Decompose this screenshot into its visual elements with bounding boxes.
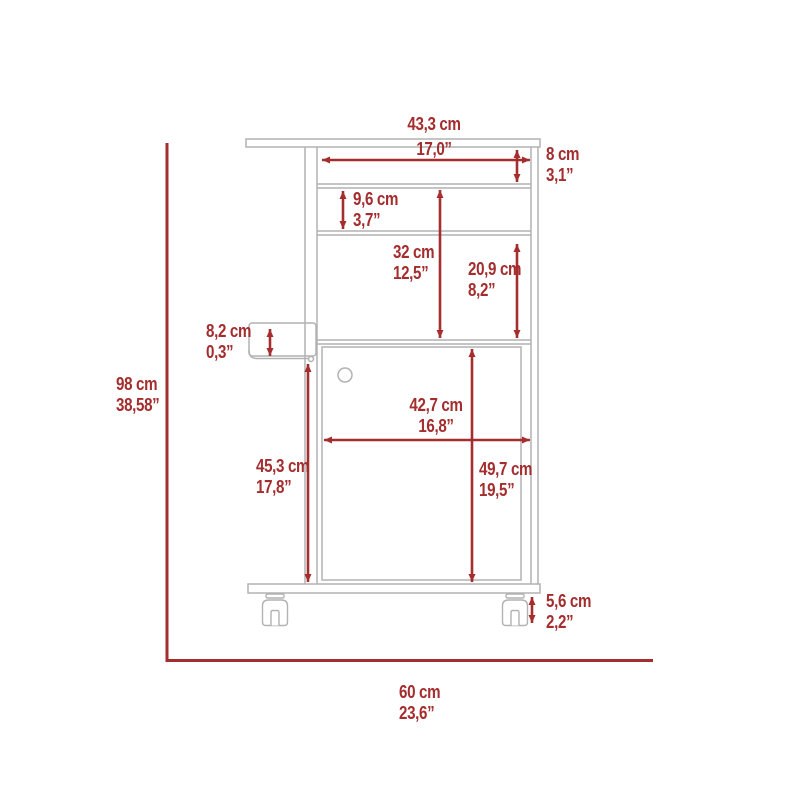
dim-towel-bar-cm: 8,2 cm	[206, 321, 251, 342]
dim-label-towel-bar: 8,2 cm 0,3”	[206, 321, 251, 363]
dim-label-overall-height: 98 cm 38,58”	[116, 374, 159, 416]
dim-top-opening-in: 3,1”	[546, 165, 579, 186]
shelf-2	[317, 231, 531, 235]
dim-caster-in: 2,2”	[546, 612, 591, 633]
dim-label-top-width: 43,3 cm 17,0”	[407, 112, 460, 162]
countertop	[246, 139, 540, 147]
dim-overall-height-in: 38,58”	[116, 395, 159, 416]
dim-label-caster-height: 5,6 cm 2,2”	[546, 591, 591, 633]
caster-right	[503, 594, 528, 626]
dimension-diagram: 43,3 cm 17,0” 8 cm 3,1” 9,6 cm 3,7” 32 c…	[0, 0, 800, 800]
dim-door-height-cm: 49,7 cm	[479, 459, 532, 480]
dim-door-height-in: 19,5”	[479, 480, 532, 501]
dim-shelf-opening-in: 8,2”	[468, 280, 521, 301]
dim-top-opening-cm: 8 cm	[546, 144, 579, 165]
dim-towel-bar-in: 0,3”	[206, 342, 251, 363]
dim-label-door-height: 49,7 cm 19,5”	[479, 459, 532, 501]
dim-label-overall-width: 60 cm 23,6”	[399, 682, 440, 724]
dim-overall-height-cm: 98 cm	[116, 374, 159, 395]
base-panel	[248, 584, 540, 593]
shelf-1	[317, 184, 531, 188]
dim-top-width-cm: 43,3 cm	[407, 112, 460, 137]
dim-door-width-cm: 42,7 cm	[409, 395, 462, 416]
dim-middle-shelf-in: 3,7”	[353, 210, 398, 231]
dim-lower-left-in: 17,8”	[256, 477, 309, 498]
dim-upper-section-cm: 32 cm	[393, 242, 434, 263]
dim-overall-width-cm: 60 cm	[399, 682, 440, 703]
shelf-3	[317, 340, 531, 344]
dim-upper-section-in: 12,5”	[393, 263, 434, 284]
dim-top-width-in: 17,0”	[407, 137, 460, 162]
dim-lower-left-cm: 45,3 cm	[256, 456, 309, 477]
dim-middle-shelf-cm: 9,6 cm	[353, 189, 398, 210]
dim-label-lower-left-height: 45,3 cm 17,8”	[256, 456, 309, 498]
dim-label-shelf-opening: 20,9 cm 8,2”	[468, 259, 521, 301]
dim-label-upper-section: 32 cm 12,5”	[393, 242, 434, 284]
dim-shelf-opening-cm: 20,9 cm	[468, 259, 521, 280]
right-side-panel	[531, 147, 538, 584]
caster-left	[263, 594, 288, 626]
dim-label-middle-shelf: 9,6 cm 3,7”	[353, 189, 398, 231]
dim-caster-cm: 5,6 cm	[546, 591, 591, 612]
dim-label-top-opening: 8 cm 3,1”	[546, 144, 579, 186]
dim-overall-width-in: 23,6”	[399, 703, 440, 724]
dim-label-door-width: 42,7 cm 16,8”	[409, 395, 462, 437]
towel-bar	[249, 323, 316, 362]
dim-door-width-in: 16,8”	[409, 416, 462, 437]
